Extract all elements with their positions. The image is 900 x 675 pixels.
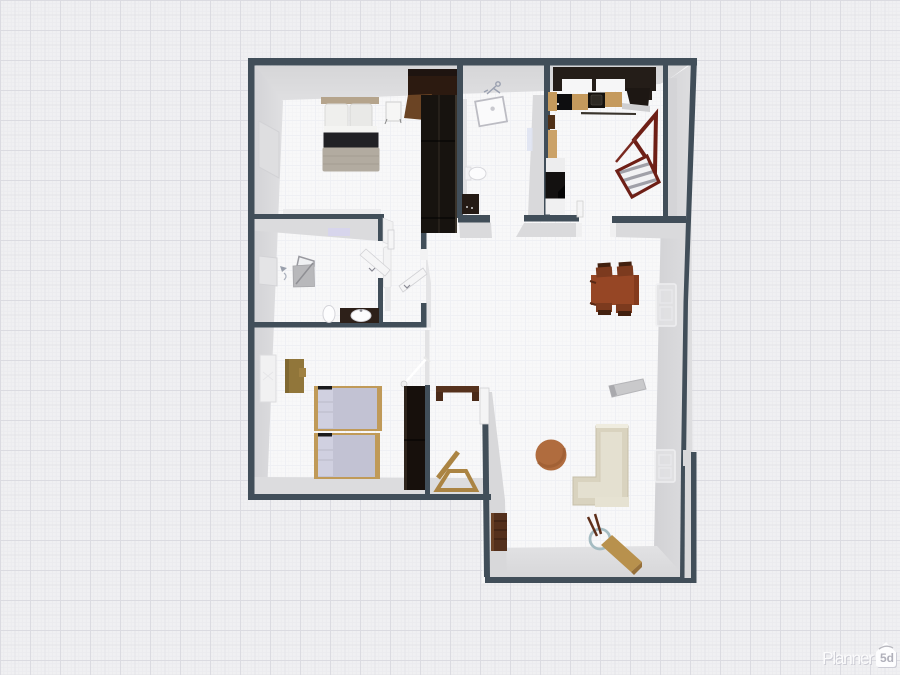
svg-text:Planner: Planner — [822, 648, 874, 668]
svg-text:5d: 5d — [880, 651, 894, 665]
